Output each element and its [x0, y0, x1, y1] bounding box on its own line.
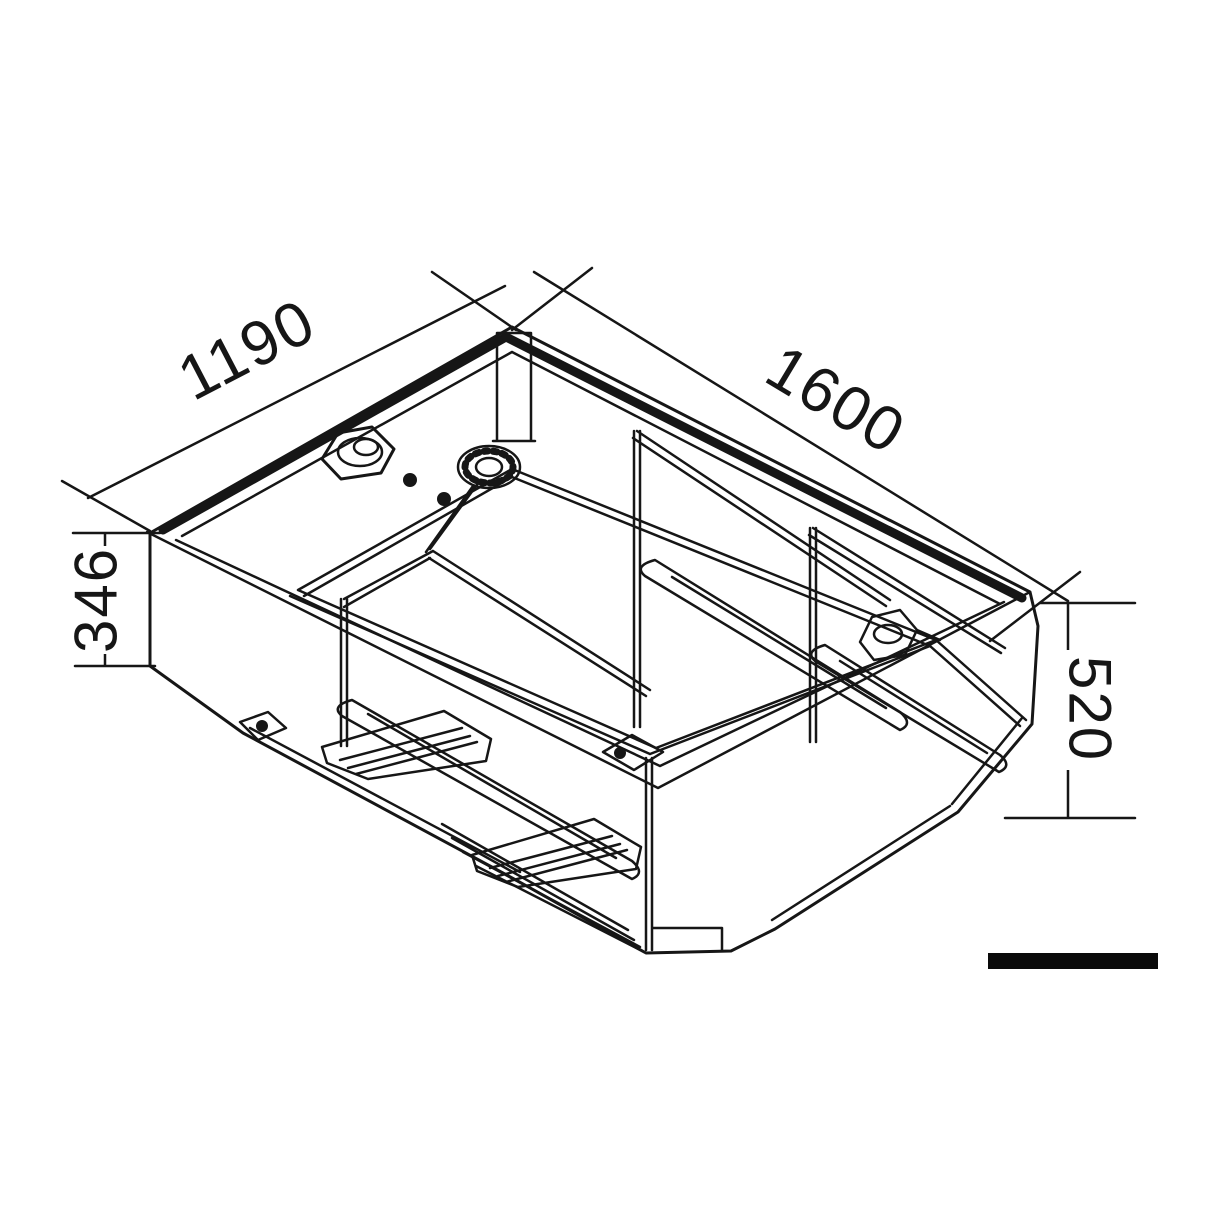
dimension-right-height: 520	[1005, 603, 1135, 818]
scale-bar	[988, 953, 1158, 969]
dimension-top-right-value: 1600	[754, 332, 917, 468]
filler-cap	[458, 446, 520, 488]
dimension-right-height-value: 520	[1057, 656, 1124, 762]
baffle-middle	[472, 431, 907, 887]
dimension-top-left-value: 1190	[167, 286, 327, 414]
filler-cap-thread-ring	[465, 451, 513, 483]
bracket-center-hole	[614, 747, 626, 759]
filler-cap-inner-ring	[476, 458, 502, 476]
technical-drawing-page: 1190 1600 346 520	[0, 0, 1214, 1214]
pickup-tube	[426, 482, 479, 552]
dimension-top-left: 1190	[62, 272, 516, 531]
bracket-left-hole	[256, 720, 268, 732]
baffle-right-bar	[811, 645, 1006, 772]
baffle-right-plate	[809, 528, 1005, 742]
sender-flange-ring-inner	[354, 439, 378, 455]
dimension-left-height: 346	[63, 533, 161, 666]
tank-interior-floor-edges	[290, 469, 936, 754]
baffle-left-plate	[341, 551, 650, 746]
fitting-dot-1	[403, 473, 417, 487]
baffle-left	[322, 551, 650, 879]
tank-technical-drawing-canvas: 1190 1600 346 520	[0, 0, 1214, 1214]
fitting-dot-2	[437, 492, 451, 506]
dimension-left-height-value: 346	[63, 547, 130, 653]
